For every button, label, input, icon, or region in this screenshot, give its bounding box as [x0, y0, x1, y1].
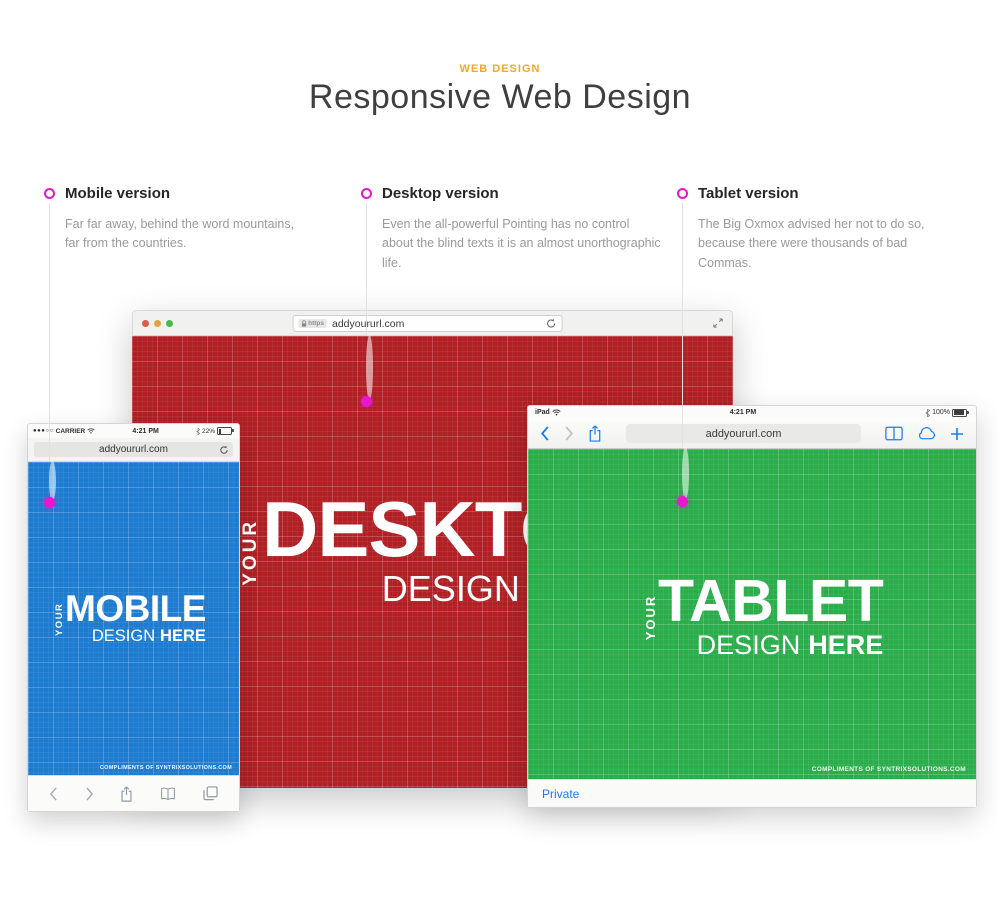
tablet-browser-toolbar: addyoururl.com — [528, 419, 976, 449]
mobile-time: 4:21 PM — [95, 428, 196, 435]
annotation-label-desktop: Desktop version — [382, 185, 499, 202]
annotation-ring-mobile — [44, 188, 55, 199]
annotation-label-tablet: Tablet version — [698, 185, 799, 202]
tablet-your-label: YOUR — [640, 574, 658, 661]
tablet-credit-text: COMPLIMENTS OF SYNTRIXSOLUTIONS.COM — [812, 766, 966, 773]
new-tab-icon[interactable] — [950, 427, 964, 441]
mobile-url-row: addyoururl.com — [28, 438, 239, 462]
close-window-button[interactable] — [142, 320, 149, 327]
wifi-icon — [87, 428, 95, 434]
section-eyebrow: WEB DESIGN — [0, 63, 1000, 75]
connector-line-mobile-device — [49, 461, 56, 501]
tablet-mockup: iPad 4:21 PM 100% addyoururl.com YOUR TA… — [527, 405, 977, 808]
mobile-word: MOBILE — [65, 592, 206, 626]
tablet-url-text: addyoururl.com — [706, 428, 782, 440]
mobile-credit-text: COMPLIMENTS OF SYNTRIXSOLUTIONS.COM — [100, 765, 232, 771]
battery-icon — [217, 427, 232, 435]
bluetooth-icon — [925, 409, 930, 417]
connector-line-desktop-device — [366, 335, 373, 400]
bluetooth-icon — [196, 428, 200, 435]
lock-icon — [301, 320, 306, 327]
marker-dot-tablet — [677, 496, 688, 507]
reload-icon[interactable] — [219, 445, 229, 455]
annotation-desc-desktop: Even the all-powerful Pointing has no co… — [382, 215, 662, 273]
signal-strength-icon: ●●●○○ — [33, 428, 54, 434]
annotation-ring-desktop — [361, 188, 372, 199]
tablet-placeholder-text: YOUR TABLET DESIGN HERE — [640, 574, 883, 661]
page-title: Responsive Web Design — [0, 78, 1000, 117]
reading-list-icon[interactable] — [885, 426, 903, 441]
marker-dot-mobile — [44, 497, 55, 508]
maximize-window-button[interactable] — [166, 320, 173, 327]
tablet-device-label: iPad — [535, 409, 550, 416]
https-badge: https — [298, 319, 327, 328]
back-icon[interactable] — [49, 787, 58, 801]
mobile-page-content: YOUR MOBILE DESIGN HERE COMPLIMENTS OF S… — [28, 462, 239, 775]
tablet-status-bar: iPad 4:21 PM 100% — [528, 406, 976, 419]
mobile-address-bar[interactable]: addyoururl.com — [34, 442, 233, 457]
connector-line-desktop — [366, 203, 367, 335]
window-controls — [142, 320, 173, 327]
mobile-your-label: YOUR — [52, 592, 65, 646]
wifi-icon — [552, 409, 561, 416]
connector-line-tablet — [682, 203, 683, 447]
reload-icon[interactable] — [545, 318, 556, 329]
mobile-mockup: ●●●○○ CARRIER 4:21 PM 22% addyoururl.com… — [27, 423, 240, 812]
annotation-desc-tablet: The Big Oxmox advised her not to do so, … — [698, 215, 963, 273]
share-icon[interactable] — [588, 425, 602, 442]
tablet-page-content: YOUR TABLET DESIGN HERE COMPLIMENTS OF S… — [528, 449, 976, 779]
desktop-url-text: addyoururl.com — [332, 318, 545, 330]
mobile-url-text: addyoururl.com — [99, 444, 168, 455]
forward-icon[interactable] — [564, 426, 574, 441]
tablet-address-bar[interactable]: addyoururl.com — [626, 424, 861, 443]
annotation-desc-mobile: Far far away, behind the word mountains,… — [65, 215, 305, 254]
tablet-word: TABLET — [658, 574, 883, 628]
mobile-browser-toolbar — [28, 775, 239, 811]
mobile-design-label: DESIGN — [92, 627, 155, 646]
mobile-status-bar: ●●●○○ CARRIER 4:21 PM 22% — [28, 424, 239, 438]
desktop-browser-chrome: https addyoururl.com — [132, 310, 733, 336]
connector-line-mobile — [49, 203, 50, 461]
back-icon[interactable] — [540, 426, 550, 441]
bookmarks-icon[interactable] — [160, 787, 176, 801]
marker-dot-desktop — [361, 396, 372, 407]
tablet-battery-percent: 100% — [932, 409, 950, 416]
tablet-time: 4:21 PM — [561, 409, 925, 416]
mobile-battery-percent: 22% — [202, 428, 215, 435]
page: WEB DESIGN Responsive Web Design Mobile … — [0, 0, 1000, 898]
tablet-here-label: HERE — [808, 630, 883, 661]
carrier-label: CARRIER — [56, 428, 86, 435]
mobile-here-label: HERE — [160, 627, 206, 646]
annotation-label-mobile: Mobile version — [65, 185, 170, 202]
tabs-icon[interactable] — [203, 786, 218, 801]
connector-line-tablet-device — [682, 447, 689, 500]
forward-icon[interactable] — [85, 787, 94, 801]
share-icon[interactable] — [120, 786, 133, 802]
minimize-window-button[interactable] — [154, 320, 161, 327]
fullscreen-icon[interactable] — [713, 318, 723, 328]
private-browsing-button[interactable]: Private — [542, 787, 579, 801]
cloud-icon[interactable] — [917, 427, 936, 440]
mobile-placeholder-text: YOUR MOBILE DESIGN HERE — [52, 592, 206, 646]
desktop-design-label: DESIGN — [382, 568, 520, 610]
desktop-address-bar[interactable]: https addyoururl.com — [292, 315, 562, 332]
tablet-design-label: DESIGN — [697, 630, 801, 661]
battery-icon — [952, 409, 967, 417]
annotation-ring-tablet — [677, 188, 688, 199]
tablet-bottom-bar: Private — [528, 779, 976, 807]
